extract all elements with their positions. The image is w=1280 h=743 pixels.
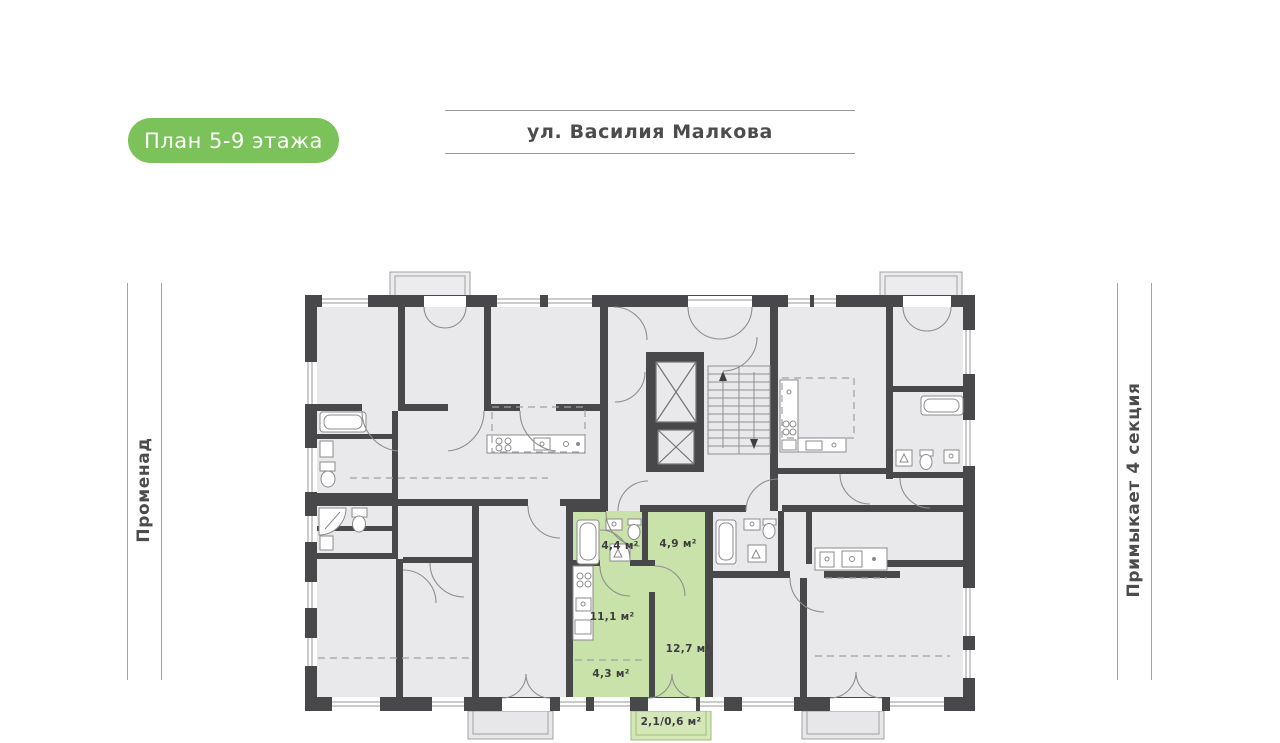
balcony-top-left <box>390 272 470 298</box>
elevator-icon <box>656 362 696 422</box>
elevator-icon <box>658 430 694 464</box>
page: План 5-9 этажа ул. Василия Малкова Проме… <box>0 0 1280 743</box>
room-area-label: 4,3 м² <box>592 668 629 680</box>
room-area-label: 4,4 м² <box>601 540 638 552</box>
balcony-area-label: 2,1/0,6 м² <box>641 716 702 728</box>
balcony-top-right <box>880 272 962 298</box>
floor-plan <box>0 0 1280 743</box>
room-area-label: 11,1 м² <box>590 611 635 623</box>
room-area-label: 4,9 м² <box>659 538 696 550</box>
balcony-bottom-right <box>802 711 884 739</box>
balcony-bottom-left <box>468 711 553 739</box>
room-area-label: 12,7 м² <box>666 643 711 655</box>
